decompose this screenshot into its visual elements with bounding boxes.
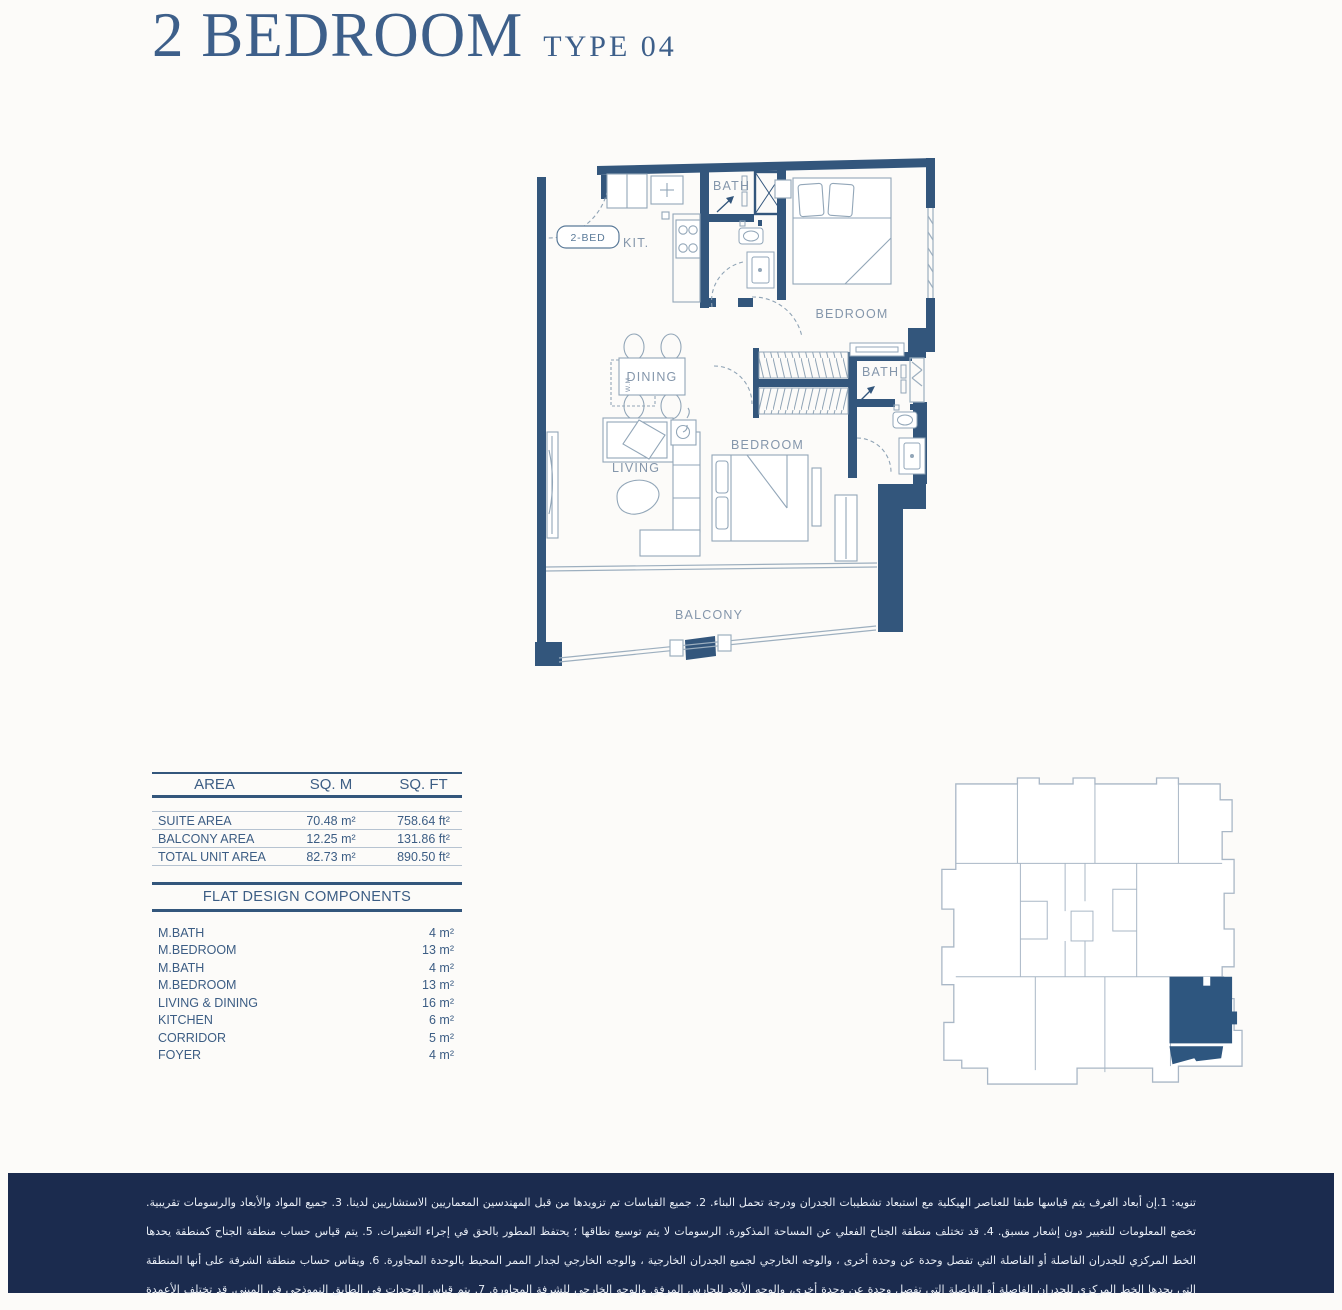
unit-type-title: 2 BEDROOM [152, 4, 523, 67]
components-table: FLAT DESIGN COMPONENTS M.BATH 4 m² M.BED… [152, 882, 462, 1064]
washing-machine-label: W.M [625, 378, 632, 393]
pillow [716, 497, 728, 529]
dining-chair [661, 393, 681, 419]
component-row: LIVING & DINING 16 m² [152, 994, 462, 1012]
balcony-label: BALCONY [675, 608, 743, 622]
dining-label: DINING [627, 370, 678, 384]
bedroom2-furniture [712, 455, 857, 561]
sqm-value: 12.25 m² [277, 832, 385, 846]
stove [676, 220, 700, 258]
bath2-fixtures [859, 365, 925, 474]
row-label: SUITE AREA [152, 814, 277, 828]
component-label: M.BATH [158, 961, 204, 975]
sofa-chaise [673, 432, 700, 532]
bench [812, 468, 821, 526]
pillow [798, 183, 824, 217]
bath1-label: BATH [713, 179, 750, 193]
component-value: 13 m² [422, 943, 454, 957]
bedroom2-door-arc [714, 366, 752, 404]
key-plan [925, 772, 1245, 1095]
component-label: M.BEDROOM [158, 978, 236, 992]
key-plan-drawing [925, 772, 1245, 1095]
table-row: TOTAL UNIT AREA 82.73 m² 890.50 ft² [152, 847, 462, 865]
component-row: KITCHEN 6 m² [152, 1012, 462, 1030]
component-value: 4 m² [429, 926, 454, 940]
component-label: M.BATH [158, 926, 204, 940]
kitchen-label: KIT. [623, 236, 649, 250]
component-row: M.BATH 4 m² [152, 924, 462, 942]
bedroom2-label: BEDROOM [731, 438, 804, 452]
dining-chair [624, 334, 644, 360]
bedroom1-door-arc [752, 297, 802, 337]
sqft-value: 131.86 ft² [385, 832, 462, 846]
living-label: LIVING [612, 461, 660, 475]
sofa-seat [640, 530, 700, 556]
area-table: AREA SQ. M SQ. FT SUITE AREA 70.48 m² 75… [152, 772, 462, 866]
toilet [739, 228, 763, 244]
toilet [893, 412, 917, 428]
sqft-value: 890.50 ft² [385, 850, 462, 864]
page-title: 2 BEDROOM TYPE 04 [152, 4, 677, 67]
side-table [671, 420, 696, 445]
pillow [716, 461, 728, 493]
bath2-label: BATH [862, 365, 899, 379]
component-label: LIVING & DINING [158, 996, 258, 1010]
component-row: M.BEDROOM 13 m² [152, 977, 462, 995]
component-value: 13 m² [422, 978, 454, 992]
column-header: SQ. M [277, 776, 385, 793]
component-label: FOYER [158, 1048, 201, 1062]
coffee-table [617, 480, 659, 514]
component-row: M.BEDROOM 13 m² [152, 942, 462, 960]
table-rule [152, 795, 462, 798]
area-table-header: AREA SQ. M SQ. FT [152, 774, 462, 795]
sqm-value: 82.73 m² [277, 850, 385, 864]
component-value: 4 m² [429, 1048, 454, 1062]
components-title: FLAT DESIGN COMPONENTS [152, 885, 462, 909]
floor-plan-drawing: 2-BED KIT. BATH BEDROOM DINING LIVING BE… [535, 150, 935, 695]
component-label: M.BEDROOM [158, 943, 236, 957]
entry-tag-label: 2-BED [571, 232, 606, 244]
table-row: SUITE AREA 70.48 m² 758.64 ft² [152, 811, 462, 829]
pillow [828, 183, 854, 217]
sqft-value: 758.64 ft² [385, 814, 462, 828]
component-row: CORRIDOR 5 m² [152, 1029, 462, 1047]
table-row: BALCONY AREA 12.25 m² 131.86 ft² [152, 829, 462, 847]
table-rule [152, 909, 462, 912]
column-header: AREA [152, 776, 277, 793]
component-value: 5 m² [429, 1031, 454, 1045]
living-furniture [547, 408, 700, 556]
sqm-value: 70.48 m² [277, 814, 385, 828]
bedroom1-label: BEDROOM [816, 307, 889, 321]
nightstand [775, 180, 791, 198]
disclaimer-text: تنويه: 1.إن أبعاد الغرف يتم قياسها طبقا … [8, 1173, 1334, 1310]
dining-chair [661, 334, 681, 360]
floor-plan: 2-BED KIT. BATH BEDROOM DINING LIVING BE… [535, 150, 935, 695]
component-row: M.BATH 4 m² [152, 959, 462, 977]
row-label: BALCONY AREA [152, 832, 277, 846]
disclaimer-banner: تنويه: 1.إن أبعاد الغرف يتم قياسها طبقا … [8, 1173, 1334, 1293]
unit-type-subtitle: TYPE 04 [543, 30, 677, 64]
row-label: TOTAL UNIT AREA [152, 850, 277, 864]
column-header: SQ. FT [385, 776, 462, 793]
component-value: 4 m² [429, 961, 454, 975]
component-row: FOYER 4 m² [152, 1047, 462, 1065]
component-label: CORRIDOR [158, 1031, 226, 1045]
floorplan-page: 2 BEDROOM TYPE 04 [0, 0, 1342, 1310]
component-label: KITCHEN [158, 1013, 213, 1027]
bath2-door-arc [857, 438, 891, 472]
bedroom1-furniture [775, 178, 891, 284]
component-value: 6 m² [429, 1013, 454, 1027]
component-value: 16 m² [422, 996, 454, 1010]
